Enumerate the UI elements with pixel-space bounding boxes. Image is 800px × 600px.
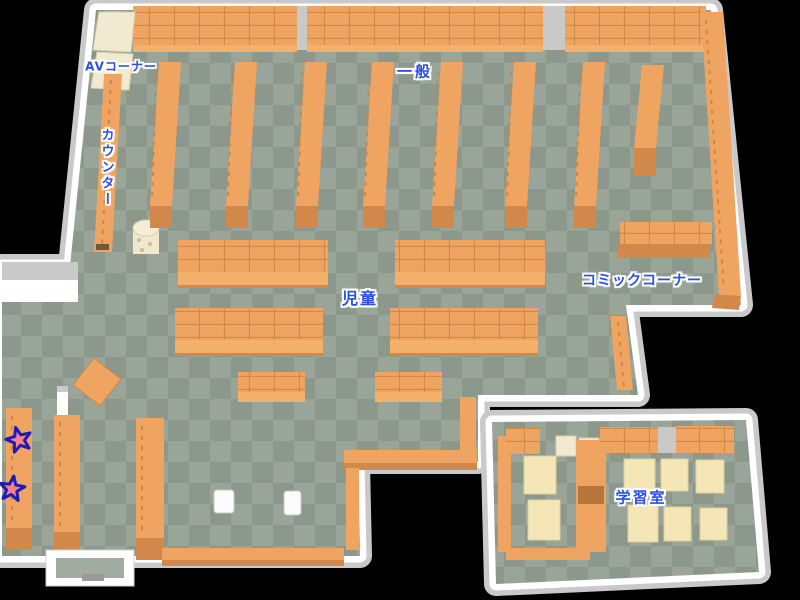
label-comic-corner: コミックコーナー bbox=[582, 270, 702, 290]
label-study-room: 学習室 bbox=[615, 487, 666, 508]
top-wall-shelves bbox=[133, 6, 706, 52]
library-floor-map: AVコーナー カウンター 一般 児童 コミックコーナー 学習室 bbox=[0, 0, 800, 600]
label-av-corner: AVコーナー bbox=[85, 58, 157, 75]
label-counter: カウンター bbox=[97, 128, 116, 208]
label-general: 一般 bbox=[397, 61, 433, 82]
label-children: 児童 bbox=[342, 285, 378, 309]
floor-map-canvas bbox=[0, 0, 800, 600]
entrance bbox=[46, 550, 134, 586]
left-step-wall bbox=[2, 262, 78, 302]
